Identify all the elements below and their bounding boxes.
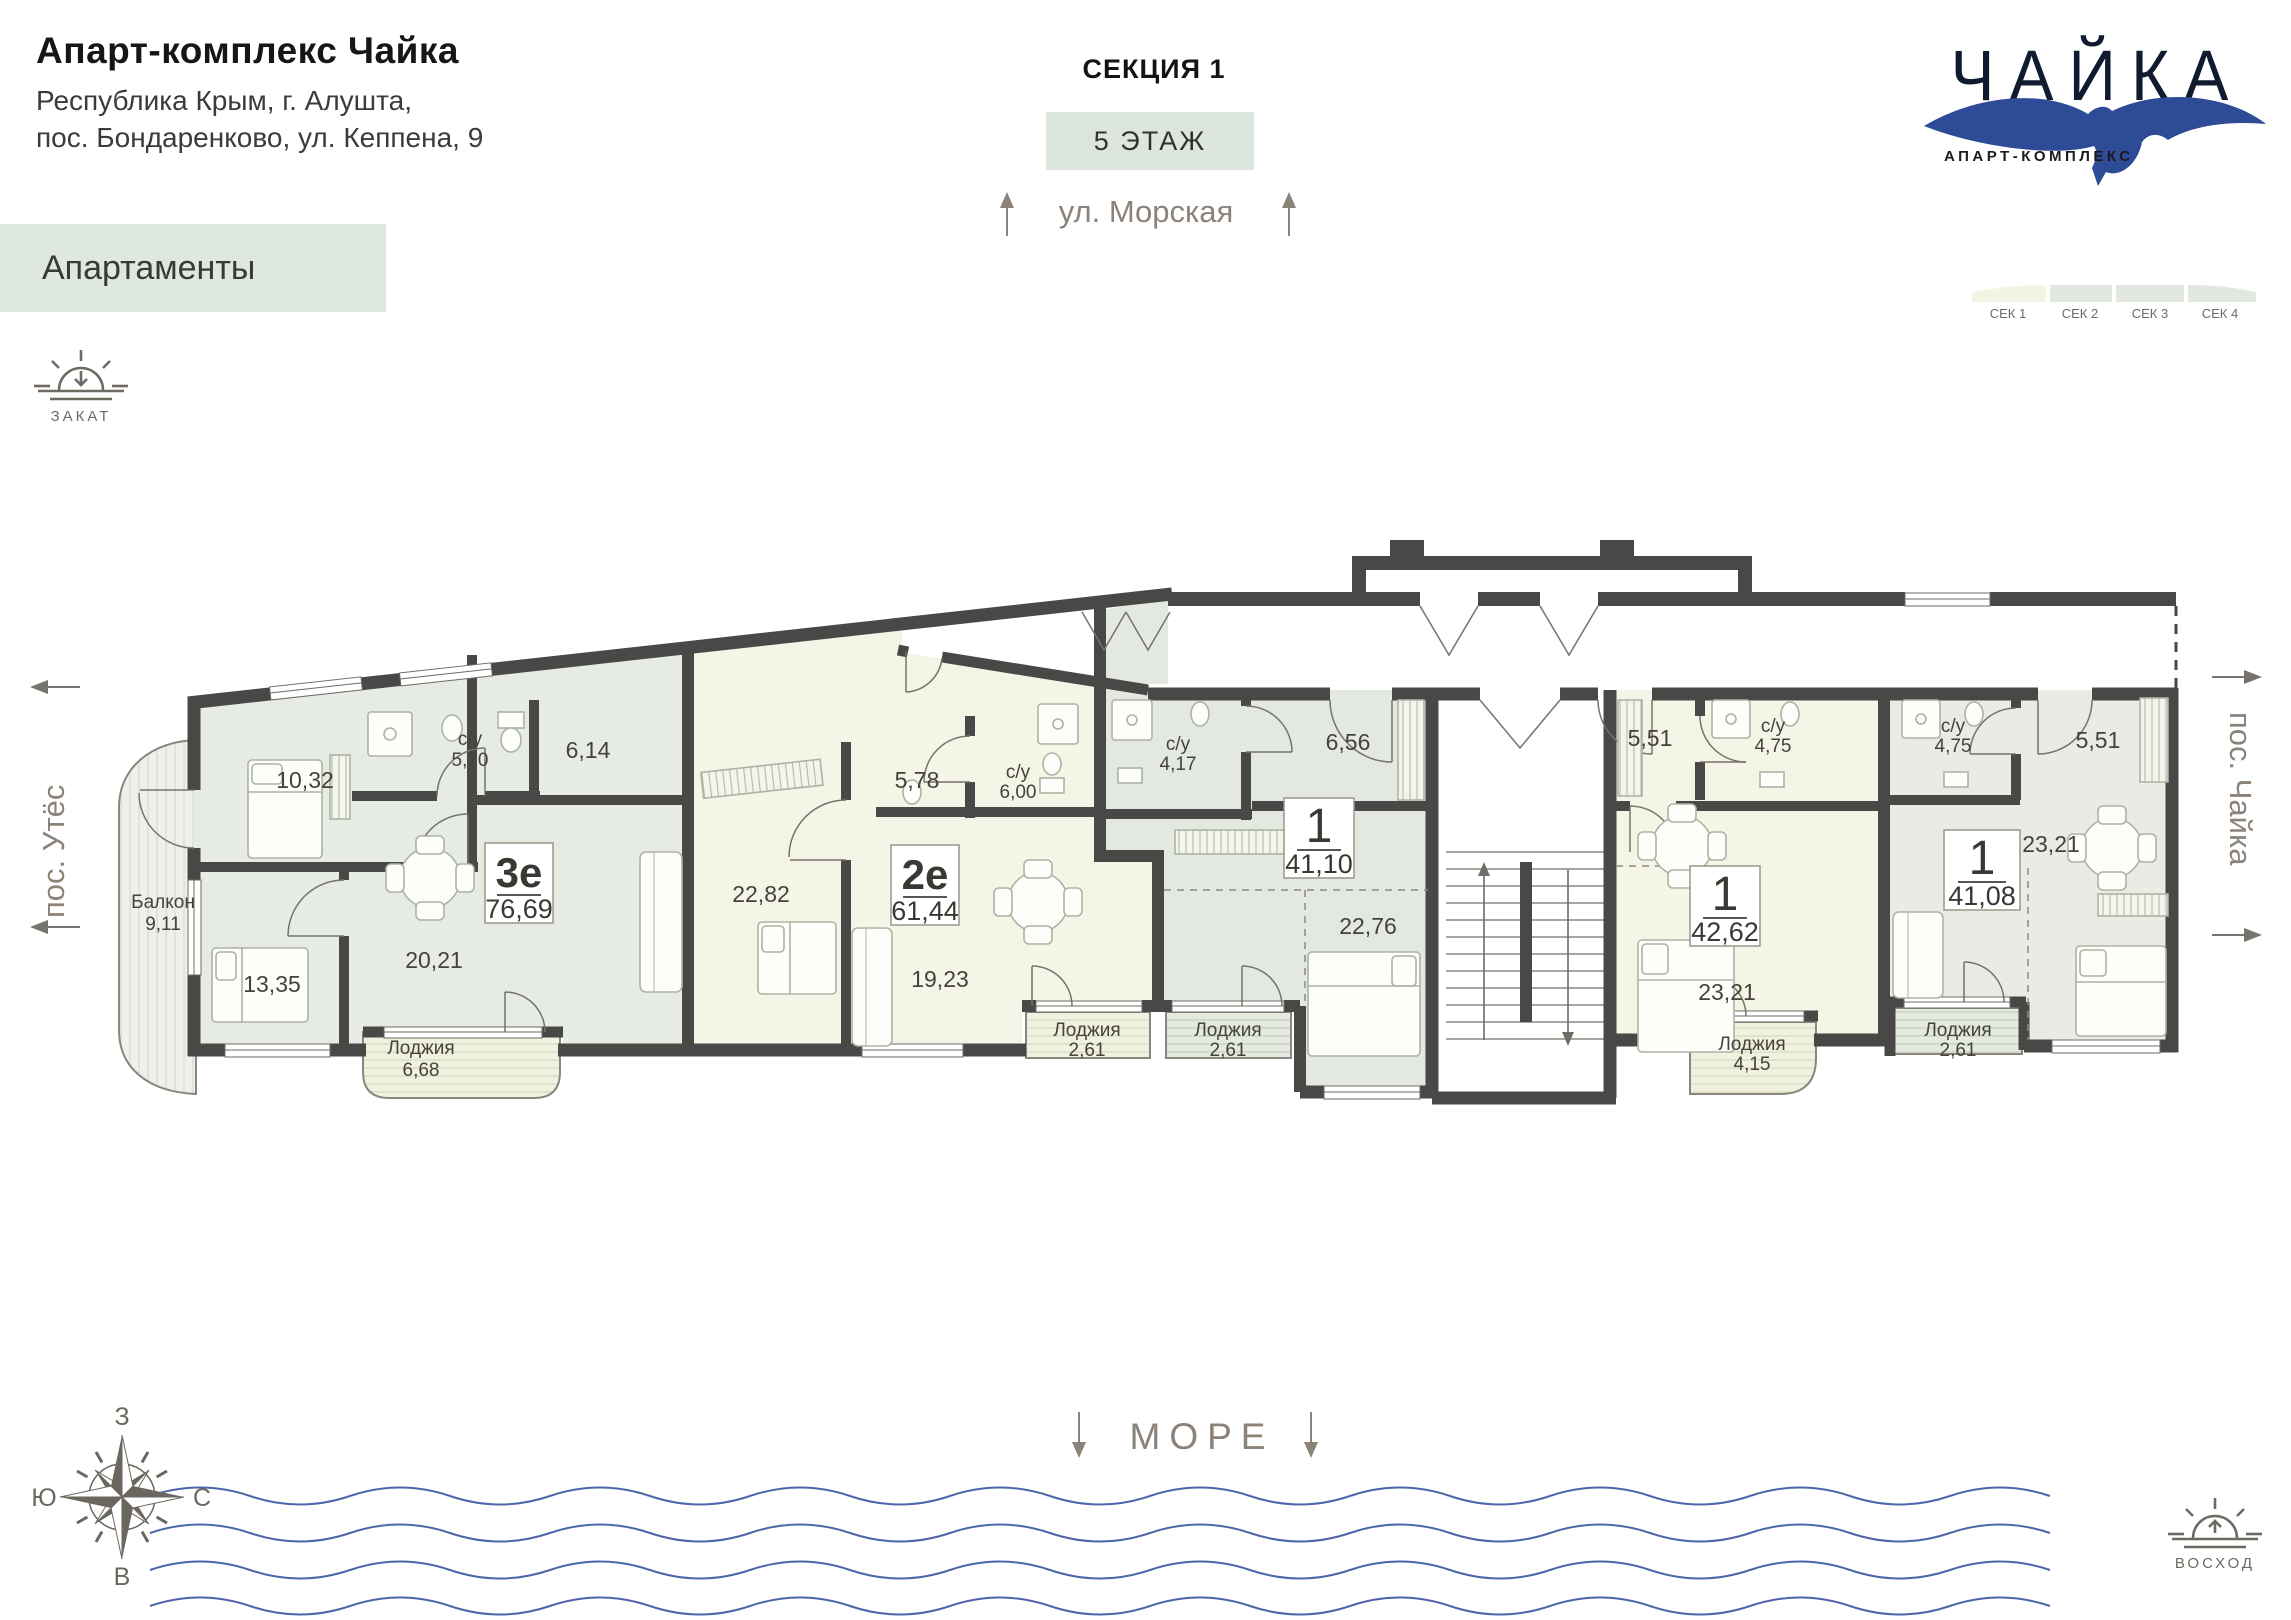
room-2321b: 23,21 (2022, 831, 2080, 857)
room-2276: 22,76 (1339, 913, 1397, 939)
svg-text:76,69: 76,69 (485, 894, 553, 924)
room-1923: 19,23 (911, 966, 969, 992)
room-su570-area: 5,70 (452, 750, 489, 771)
room-656: 6,56 (1326, 729, 1371, 755)
floor-plan: Балкон 9,11 10,32 с/у 5,70 6,14 13,35 20… (0, 0, 2291, 1620)
svg-text:3е: 3е (496, 849, 543, 896)
unit-badge-2e[interactable]: 2е 61,44 (891, 845, 959, 926)
unit-badge-3e[interactable]: 3е 76,69 (485, 843, 553, 924)
floorplan-page: Апарт-комплекс Чайка Республика Крым, г.… (0, 0, 2291, 1620)
room-loggia261c-name: Лоджия (1924, 1020, 1991, 1041)
room-su475a-area: 4,75 (1755, 736, 1792, 757)
svg-text:41,08: 41,08 (1948, 881, 2016, 911)
room-loggia261a-area: 2,61 (1069, 1040, 1106, 1061)
room-su417-name: с/у (1166, 734, 1191, 755)
room-loggia261c-area: 2,61 (1940, 1040, 1977, 1061)
unit-badge-1a[interactable]: 1 41,10 (1284, 798, 1354, 879)
room-loggia415-area: 4,15 (1734, 1054, 1771, 1075)
room-1032: 10,32 (276, 767, 334, 793)
room-loggia668-name: Лоджия (387, 1038, 454, 1059)
room-su570-name: с/у (458, 729, 483, 750)
unit-1a-floor-2 (1100, 600, 1168, 684)
room-2021: 20,21 (405, 947, 463, 973)
room-loggia668-area: 6,68 (403, 1060, 440, 1081)
room-balkon-area: 9,11 (145, 914, 181, 935)
room-551a: 5,51 (1628, 725, 1673, 751)
stairwell (1438, 700, 1614, 1092)
room-loggia261a-name: Лоджия (1053, 1020, 1120, 1041)
room-1335: 13,35 (243, 971, 301, 997)
room-loggia261b-area: 2,61 (1210, 1040, 1247, 1061)
svg-text:1: 1 (1712, 868, 1739, 921)
svg-text:1: 1 (1969, 832, 1996, 885)
room-su417-area: 4,17 (1160, 754, 1197, 775)
svg-text:61,44: 61,44 (891, 896, 959, 926)
room-loggia415-name: Лоджия (1718, 1034, 1785, 1055)
room-su600-name: с/у (1006, 762, 1031, 783)
room-su475b-name: с/у (1941, 716, 1966, 737)
room-su600-area: 6,00 (1000, 782, 1037, 803)
svg-text:41,10: 41,10 (1285, 849, 1353, 879)
room-2321a: 23,21 (1698, 979, 1756, 1005)
room-551b: 5,51 (2076, 727, 2121, 753)
svg-text:2е: 2е (902, 851, 949, 898)
svg-text:1: 1 (1306, 800, 1333, 853)
room-loggia261b-name: Лоджия (1194, 1020, 1261, 1041)
room-578: 5,78 (895, 767, 940, 793)
unit-badge-1b[interactable]: 1 42,62 (1690, 866, 1760, 947)
room-su475b-area: 4,75 (1935, 736, 1972, 757)
unit-badge-1c[interactable]: 1 41,08 (1944, 830, 2020, 911)
room-balkon-name: Балкон (131, 892, 195, 913)
svg-text:42,62: 42,62 (1691, 917, 1759, 947)
room-2282: 22,82 (732, 881, 790, 907)
room-su475a-name: с/у (1761, 716, 1786, 737)
room-614: 6,14 (566, 737, 611, 763)
